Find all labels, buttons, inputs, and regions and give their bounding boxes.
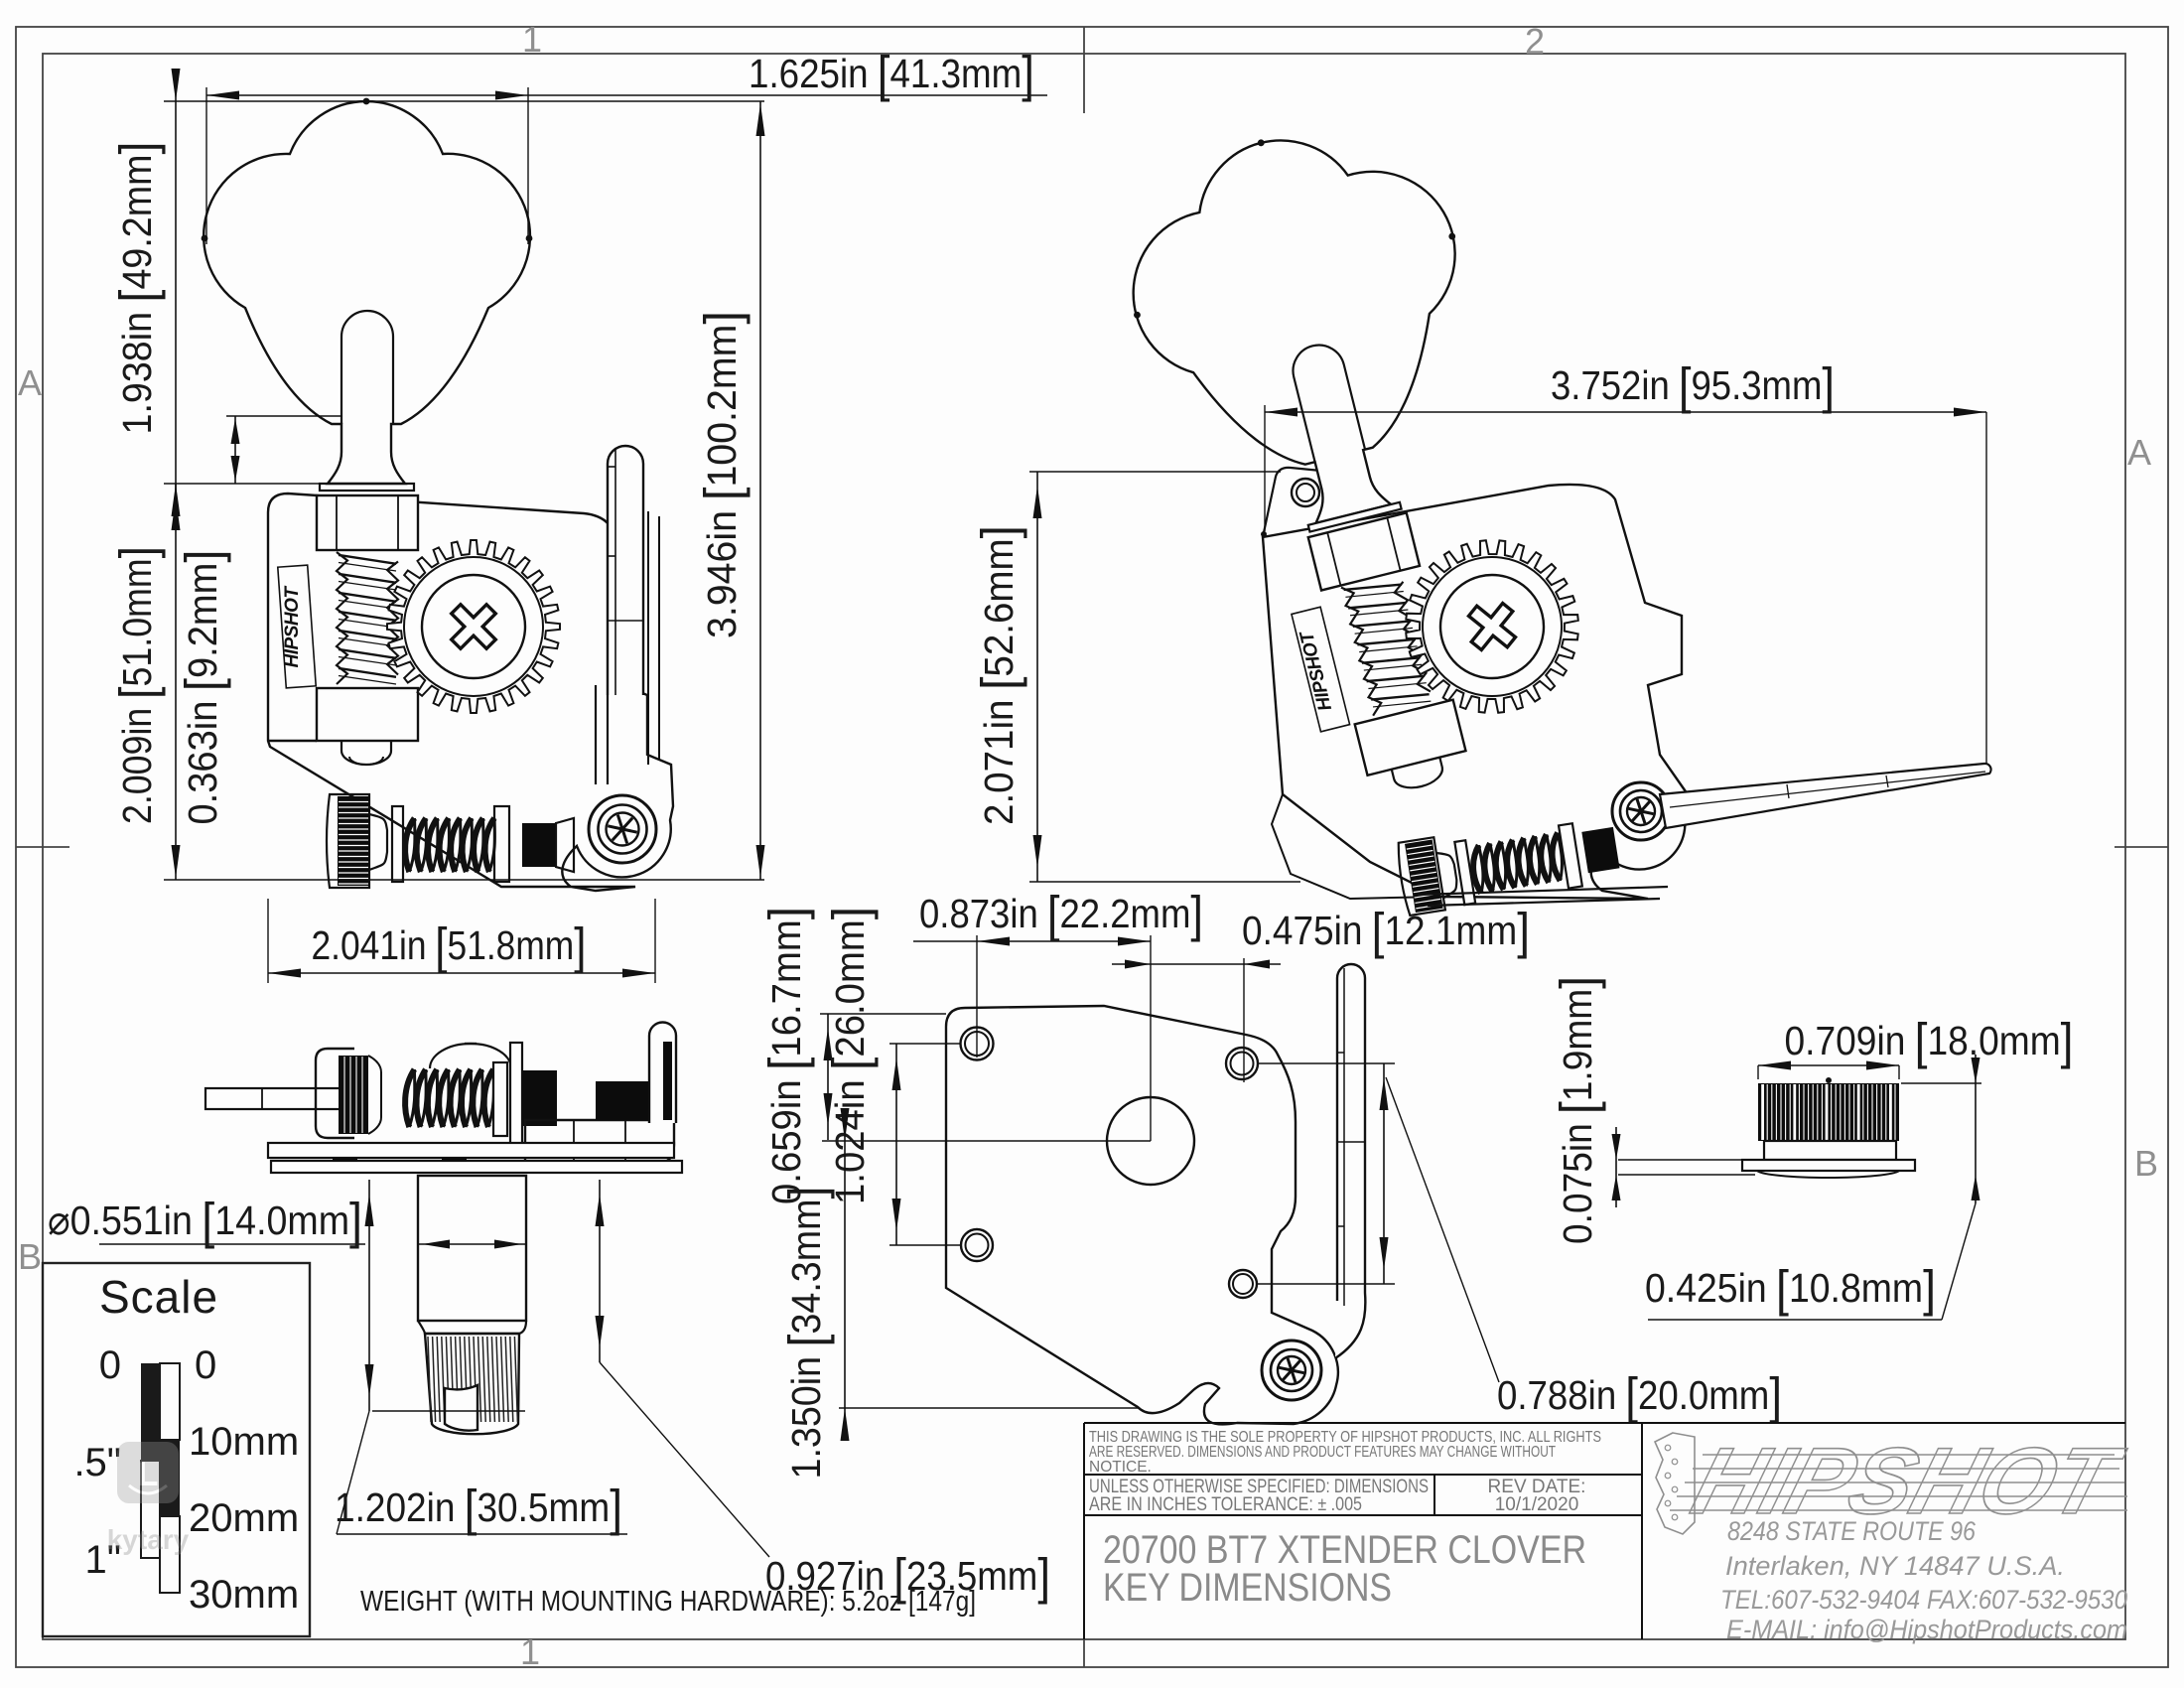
- svg-text:.5": .5": [73, 1441, 121, 1484]
- svg-text:ARE RESERVED. DIMENSIONS AND P: ARE RESERVED. DIMENSIONS AND PRODUCT FEA…: [1089, 1444, 1556, 1461]
- svg-text:0.659in [16.7mm]: 0.659in [16.7mm]: [758, 907, 815, 1204]
- svg-text:1.024in [26.0mm]: 1.024in [26.0mm]: [822, 907, 879, 1204]
- svg-text:0.075in [1.9mm]: 0.075in [1.9mm]: [1550, 976, 1606, 1244]
- svg-text:⌀0.551in [14.0mm]: ⌀0.551in [14.0mm]: [48, 1193, 362, 1249]
- svg-text:Scale: Scale: [99, 1271, 218, 1323]
- svg-text:HIPSHOT: HIPSHOT: [282, 586, 303, 668]
- svg-text:0.873in [22.2mm]: 0.873in [22.2mm]: [919, 886, 1203, 942]
- svg-text:0.709in [18.0mm]: 0.709in [18.0mm]: [1785, 1013, 2074, 1069]
- svg-text:20mm: 20mm: [189, 1496, 299, 1540]
- svg-text:2.071in [52.6mm]: 2.071in [52.6mm]: [971, 525, 1027, 825]
- svg-text:Interlaken, NY 14847 U.S.A.: Interlaken, NY 14847 U.S.A.: [1725, 1551, 2065, 1581]
- svg-text:B: B: [18, 1236, 42, 1277]
- svg-text:A: A: [2127, 432, 2151, 473]
- svg-text:1.202in [30.5mm]: 1.202in [30.5mm]: [335, 1480, 622, 1536]
- svg-text:B: B: [2134, 1143, 2158, 1184]
- svg-text:kytary: kytary: [107, 1524, 190, 1555]
- svg-text:1.350in [34.3mm]: 1.350in [34.3mm]: [778, 1187, 835, 1480]
- svg-text:2.041in [51.8mm]: 2.041in [51.8mm]: [312, 917, 587, 974]
- svg-text:10mm: 10mm: [189, 1420, 299, 1464]
- svg-text:10/1/2020: 10/1/2020: [1495, 1494, 1579, 1515]
- svg-text:2: 2: [1525, 21, 1545, 62]
- svg-text:ARE IN INCHES TOLERANCE: ± .00: ARE IN INCHES TOLERANCE: ± .005: [1089, 1494, 1362, 1515]
- svg-text:E-MAIL: info@HipshotProducts.c: E-MAIL: info@HipshotProducts.com: [1726, 1615, 2127, 1644]
- svg-text:A: A: [18, 362, 42, 403]
- svg-text:NOTICE.: NOTICE.: [1089, 1459, 1152, 1476]
- svg-text:1.938in [49.2mm]: 1.938in [49.2mm]: [109, 142, 166, 435]
- svg-text:0.363in [9.2mm]: 0.363in [9.2mm]: [175, 550, 231, 825]
- svg-text:TEL:607-532-9404 FAX:607-532-9: TEL:607-532-9404 FAX:607-532-9530: [1720, 1585, 2127, 1615]
- svg-text:3.946in [100.2mm]: 3.946in [100.2mm]: [694, 311, 751, 638]
- svg-text:0.475in [12.1mm]: 0.475in [12.1mm]: [1242, 903, 1530, 959]
- svg-text:1: 1: [520, 1631, 540, 1672]
- svg-text:2.009in [51.0mm]: 2.009in [51.0mm]: [109, 546, 166, 824]
- svg-text:3.752in [95.3mm]: 3.752in [95.3mm]: [1551, 357, 1835, 414]
- svg-text:1.625in [41.3mm]: 1.625in [41.3mm]: [749, 46, 1034, 102]
- svg-text:WEIGHT (WITH MOUNTING HARDWARE: WEIGHT (WITH MOUNTING HARDWARE): 5.2oz […: [360, 1586, 976, 1618]
- svg-text:8248 STATE ROUTE 96: 8248 STATE ROUTE 96: [1727, 1516, 1977, 1546]
- svg-text:0.425in [10.8mm]: 0.425in [10.8mm]: [1645, 1260, 1936, 1317]
- svg-text:30mm: 30mm: [189, 1573, 299, 1617]
- svg-text:0.788in [20.0mm]: 0.788in [20.0mm]: [1497, 1367, 1782, 1424]
- svg-text:L: L: [138, 1456, 159, 1493]
- svg-text:0: 0: [195, 1343, 216, 1387]
- svg-text:KEY DIMENSIONS: KEY DIMENSIONS: [1103, 1566, 1392, 1610]
- svg-text:0: 0: [99, 1343, 121, 1387]
- svg-text:1: 1: [522, 19, 542, 60]
